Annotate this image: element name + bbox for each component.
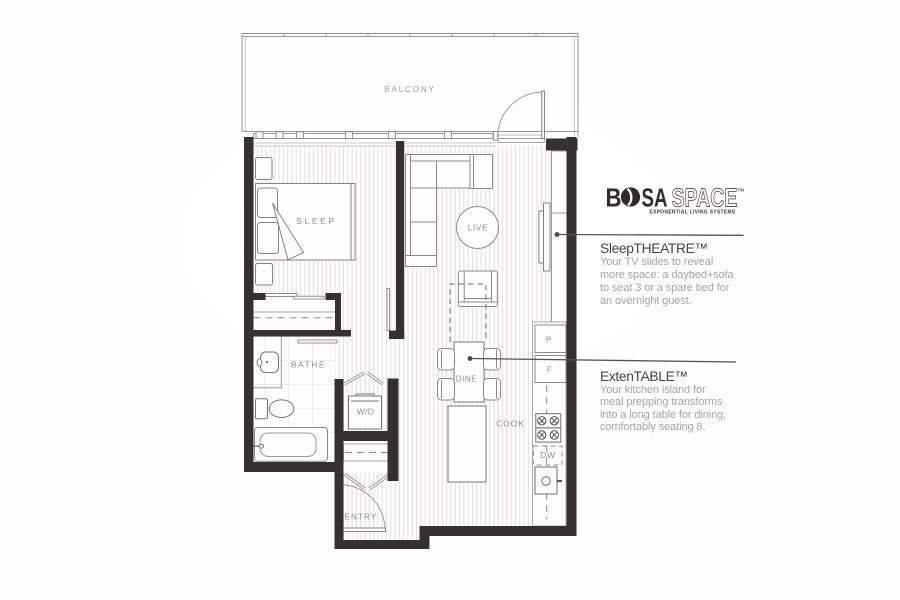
- svg-text:SPACE: SPACE: [672, 183, 738, 213]
- svg-text:SA: SA: [642, 183, 668, 213]
- svg-text:BATHE: BATHE: [291, 360, 326, 370]
- svg-text:LIVE: LIVE: [468, 224, 489, 233]
- svg-text:W/D: W/D: [357, 407, 374, 417]
- svg-text:SLEEP: SLEEP: [296, 216, 336, 226]
- svg-text:COOK: COOK: [496, 419, 525, 429]
- svg-text:DINE: DINE: [456, 375, 478, 384]
- svg-text:DW: DW: [540, 450, 556, 460]
- svg-text:F: F: [547, 366, 552, 375]
- svg-text:BALCONY: BALCONY: [384, 85, 436, 94]
- svg-text:ENTRY: ENTRY: [345, 513, 378, 522]
- svg-text:P: P: [546, 336, 551, 345]
- svg-text:EXPONENTIAL LIVING SYSTEMS: EXPONENTIAL LIVING SYSTEMS: [650, 210, 736, 216]
- svg-text:TM: TM: [738, 188, 745, 193]
- svg-text:B: B: [606, 183, 622, 213]
